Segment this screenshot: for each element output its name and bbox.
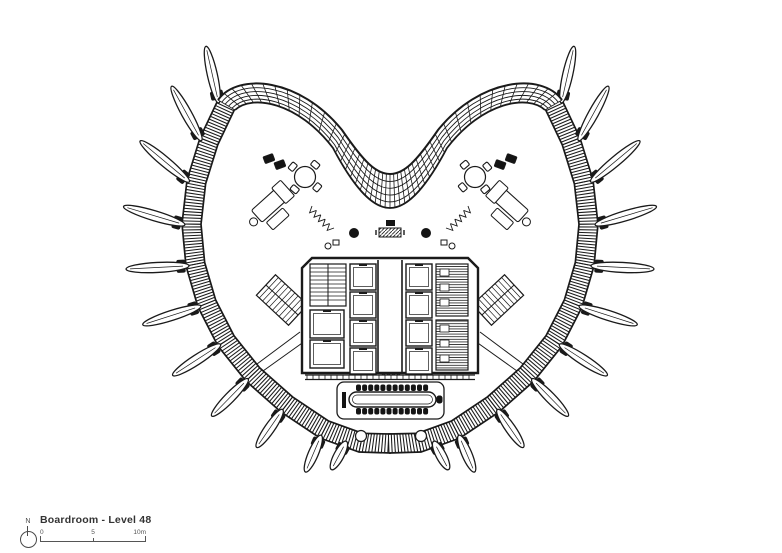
floor-plan-drawing: [0, 0, 782, 553]
lift-cell: [350, 348, 376, 374]
boardroom-chair: [387, 385, 392, 392]
boardroom-chair: [387, 408, 392, 415]
boardroom-chair: [380, 408, 385, 415]
lift-cell: [350, 264, 376, 290]
wc-block: [436, 264, 468, 316]
floor-circle: [356, 431, 367, 442]
service-core: [302, 258, 478, 380]
boardroom-chair: [399, 408, 404, 415]
lift-cell: [350, 320, 376, 346]
boardroom-chair: [411, 385, 416, 392]
boardroom-chair: [393, 408, 398, 415]
wc-block: [436, 320, 468, 370]
boardroom-chair: [423, 385, 428, 392]
column-dot: [421, 228, 431, 238]
lift-cell: [406, 264, 432, 290]
core-stair: [310, 264, 346, 306]
boardroom-chair: [417, 385, 422, 392]
column-dot: [349, 228, 359, 238]
boardroom-chair: [411, 408, 416, 415]
floor-circle: [416, 431, 427, 442]
boardroom-chair: [437, 396, 443, 404]
boardroom-chair: [374, 408, 379, 415]
boardroom-chair: [362, 385, 367, 392]
presentation-screen: [342, 392, 346, 408]
boardroom-chair: [417, 408, 422, 415]
boardroom-chair: [399, 385, 404, 392]
lift-cell: [406, 348, 432, 374]
boardroom-chair: [356, 408, 361, 415]
lift-cell: [406, 292, 432, 318]
boardroom-chair: [423, 408, 428, 415]
console-desk: [379, 228, 401, 237]
boardroom-chair: [368, 385, 373, 392]
architectural-sheet: N Boardroom - Level 48 0 5 10m: [0, 0, 782, 553]
lift-cell: [310, 310, 344, 338]
boardroom-chair: [405, 408, 410, 415]
boardroom-chair: [368, 408, 373, 415]
lift-cell: [310, 340, 344, 368]
boardroom-table: [349, 392, 436, 407]
boardroom-chair: [405, 385, 410, 392]
boardroom-chair: [356, 385, 361, 392]
boardroom-chair: [380, 385, 385, 392]
lift-cell: [350, 292, 376, 318]
boardroom-chair: [393, 385, 398, 392]
console-screen: [386, 220, 395, 226]
boardroom-chair: [374, 385, 379, 392]
lift-cell: [406, 320, 432, 346]
boardroom-chair: [362, 408, 367, 415]
